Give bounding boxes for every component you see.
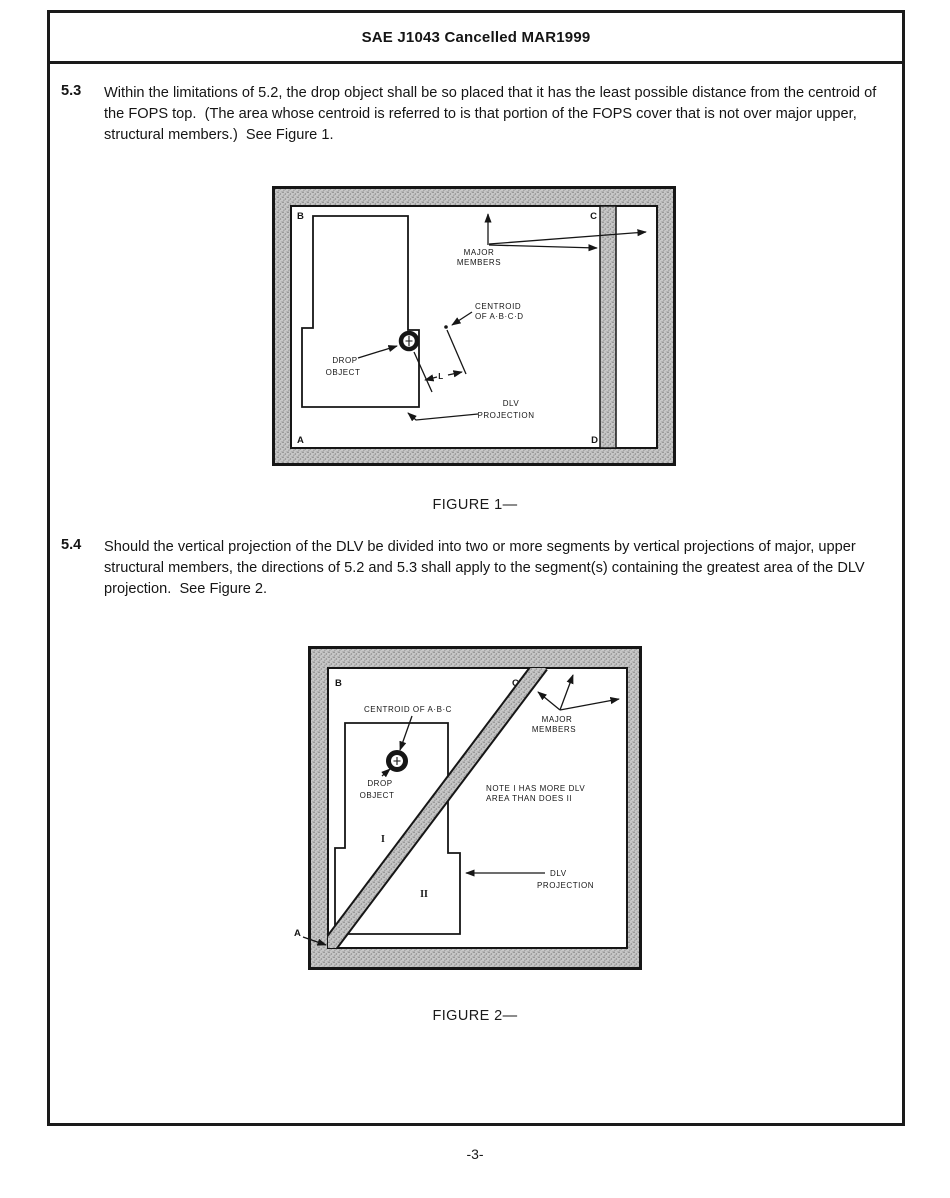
- drop-object-line1: DROP: [367, 779, 392, 788]
- drop-object-symbol: [389, 753, 406, 770]
- note-line1: NOTE I HAS MORE DLV: [486, 784, 585, 793]
- section-5-3-text: Within the limitations of 5.2, the drop …: [104, 83, 896, 145]
- section-5-4-text: Should the vertical projection of the DL…: [104, 537, 896, 599]
- figure-2-caption: FIGURE 2—: [0, 1008, 950, 1024]
- major-members-line1: MAJOR: [542, 715, 573, 724]
- corner-label-a: A: [294, 928, 301, 939]
- figure-1-diagram: B C A D L CENTROID OF A·B·C·D MAJOR MEMB…: [272, 186, 676, 466]
- dlv-label-line1: DLV: [503, 399, 520, 408]
- section-5-3-number: 5.3: [61, 83, 81, 99]
- dlv-label-line2: PROJECTION: [477, 411, 534, 420]
- drop-object-line1: DROP: [332, 356, 357, 365]
- drop-object-line2: OBJECT: [326, 368, 361, 377]
- drop-object-line2: OBJECT: [360, 791, 395, 800]
- corner-label-b: B: [297, 211, 304, 222]
- major-members-line2: MEMBERS: [457, 258, 501, 267]
- segment-1-label: I: [381, 834, 385, 845]
- corner-label-d: D: [591, 435, 598, 446]
- centroid-label-line1: CENTROID: [475, 302, 521, 311]
- page-number: -3-: [0, 1146, 950, 1162]
- document-page: { "header": { "title": "SAE J1043 Cancel…: [0, 0, 950, 1198]
- dlv-label-line2: PROJECTION: [537, 881, 594, 890]
- major-members-line1: MAJOR: [464, 248, 495, 257]
- dlv-label-line1: DLV: [550, 869, 567, 878]
- corner-label-a: A: [297, 435, 304, 446]
- segment-2-label: II: [420, 889, 428, 900]
- note-text: NOTE I HAS MORE DLV AREA THAN DOES II: [486, 784, 585, 803]
- centroid-label: CENTROID OF A·B·C: [364, 705, 452, 714]
- centroid-point: [444, 325, 448, 329]
- major-members-line2: MEMBERS: [532, 725, 576, 734]
- figure-2-diagram: B C CENTROID OF A·B·C DROP OBJECT I II N…: [292, 646, 642, 970]
- corner-label-b: B: [335, 678, 342, 689]
- dimension-l-label: L: [438, 372, 443, 381]
- document-header: SAE J1043 Cancelled MAR1999: [50, 13, 902, 64]
- figure-1-caption: FIGURE 1—: [0, 497, 950, 513]
- drop-object-symbol: [401, 333, 417, 349]
- document-title: SAE J1043 Cancelled MAR1999: [362, 29, 591, 46]
- vertical-member-strip: [600, 206, 616, 448]
- corner-label-c: C: [590, 211, 597, 222]
- note-line2: AREA THAN DOES II: [486, 794, 572, 803]
- section-5-4-number: 5.4: [61, 537, 81, 553]
- centroid-label-line2: OF A·B·C·D: [475, 312, 524, 321]
